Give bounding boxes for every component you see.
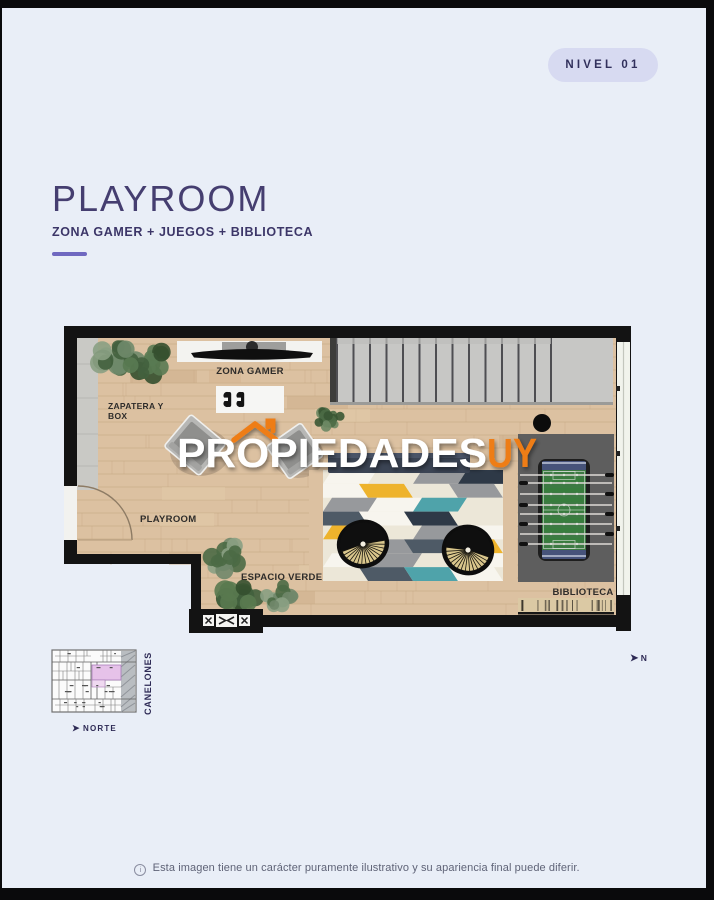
svg-text:ZAPATERA Y: ZAPATERA Y (108, 401, 164, 411)
svg-text:ZONA GAMER: ZONA GAMER (216, 366, 284, 377)
svg-text:PLAYROOM: PLAYROOM (140, 514, 196, 525)
svg-text:ESPACIO VERDE: ESPACIO VERDE (241, 572, 322, 583)
svg-text:BOX: BOX (108, 411, 127, 421)
svg-text:PROPIEDADES: PROPIEDADES (177, 430, 487, 476)
svg-text:BIBLIOTECA: BIBLIOTECA (552, 587, 613, 598)
svg-text:UY: UY (487, 430, 537, 476)
